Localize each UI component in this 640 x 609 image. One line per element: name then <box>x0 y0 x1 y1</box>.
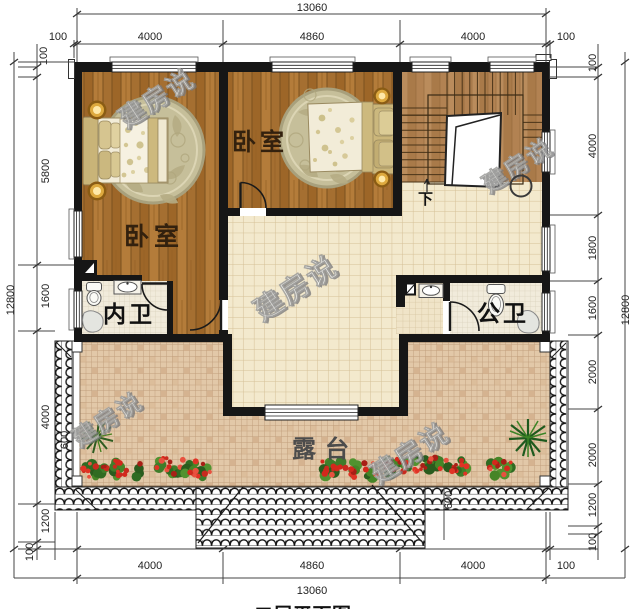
svg-text:1200: 1200 <box>587 493 599 517</box>
svg-text:12800: 12800 <box>620 295 632 326</box>
svg-text:1600: 1600 <box>587 296 599 320</box>
svg-text:100: 100 <box>38 47 50 65</box>
svg-text:二层平面图: 二层平面图 <box>254 604 352 609</box>
svg-text:卧室: 卧室 <box>124 222 184 251</box>
svg-text:1200: 1200 <box>40 509 52 533</box>
svg-text:100: 100 <box>24 543 36 561</box>
svg-text:4000: 4000 <box>461 560 485 572</box>
svg-text:4000: 4000 <box>461 31 485 43</box>
svg-text:13060: 13060 <box>297 2 328 14</box>
svg-text:4000: 4000 <box>138 560 162 572</box>
svg-text:下: 下 <box>418 191 433 208</box>
svg-text:600: 600 <box>443 491 455 509</box>
svg-text:4860: 4860 <box>300 31 324 43</box>
svg-text:12800: 12800 <box>5 285 17 316</box>
svg-text:100: 100 <box>557 31 575 43</box>
svg-text:公卫: 公卫 <box>477 300 529 326</box>
svg-text:13060: 13060 <box>297 585 328 597</box>
svg-text:100: 100 <box>587 533 599 551</box>
svg-text:1800: 1800 <box>587 236 599 260</box>
svg-text:4000: 4000 <box>587 134 599 158</box>
svg-text:卧室: 卧室 <box>232 128 288 156</box>
svg-text:4000: 4000 <box>40 405 52 429</box>
svg-text:2000: 2000 <box>587 443 599 467</box>
svg-text:100: 100 <box>557 560 575 572</box>
svg-text:5800: 5800 <box>40 159 52 183</box>
svg-text:2000: 2000 <box>587 360 599 384</box>
svg-text:100: 100 <box>587 54 599 72</box>
svg-text:4000: 4000 <box>138 31 162 43</box>
svg-text:4860: 4860 <box>300 560 324 572</box>
svg-text:100: 100 <box>49 31 67 43</box>
svg-text:露台: 露台 <box>292 435 358 463</box>
svg-text:1600: 1600 <box>40 284 52 308</box>
svg-text:内卫: 内卫 <box>103 301 155 327</box>
